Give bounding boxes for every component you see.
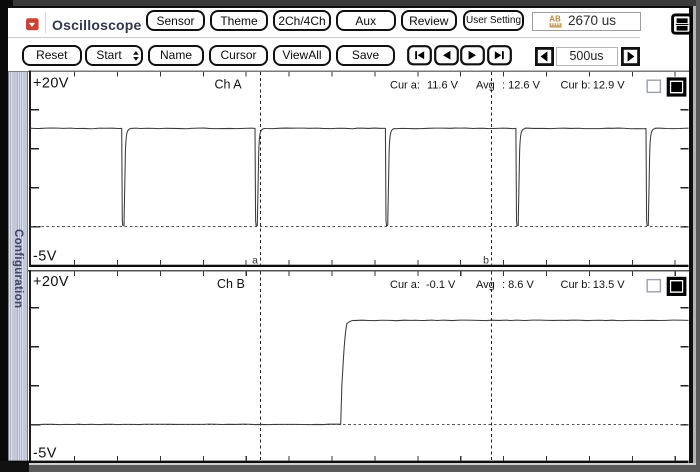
svg-text:+20V: +20V <box>33 274 69 290</box>
svg-text:: 12.6 V: : 12.6 V <box>502 80 541 92</box>
svg-text:-5V: -5V <box>33 446 57 462</box>
svg-text:Cur b:: Cur b: <box>561 80 591 92</box>
svg-text:Ch A: Ch A <box>215 78 243 92</box>
svg-text:12.9 V: 12.9 V <box>593 80 625 92</box>
svg-text:: 8.6 V: : 8.6 V <box>502 279 534 291</box>
svg-text:Cur b:: Cur b: <box>561 279 591 291</box>
svg-text:-5V: -5V <box>33 249 57 265</box>
svg-text:-0.1 V: -0.1 V <box>426 279 456 291</box>
svg-text:b: b <box>483 255 489 267</box>
svg-text:11.6 V: 11.6 V <box>427 80 459 92</box>
svg-text:Avg: Avg <box>476 80 495 92</box>
svg-text:Ch B: Ch B <box>217 277 245 291</box>
svg-text:13.5 V: 13.5 V <box>593 279 625 291</box>
svg-text:Cur a:: Cur a: <box>390 80 420 92</box>
svg-text:a: a <box>252 255 258 267</box>
svg-text:Cur a:: Cur a: <box>390 279 420 291</box>
svg-text:Avg: Avg <box>476 279 495 291</box>
svg-text:+20V: +20V <box>33 76 69 92</box>
